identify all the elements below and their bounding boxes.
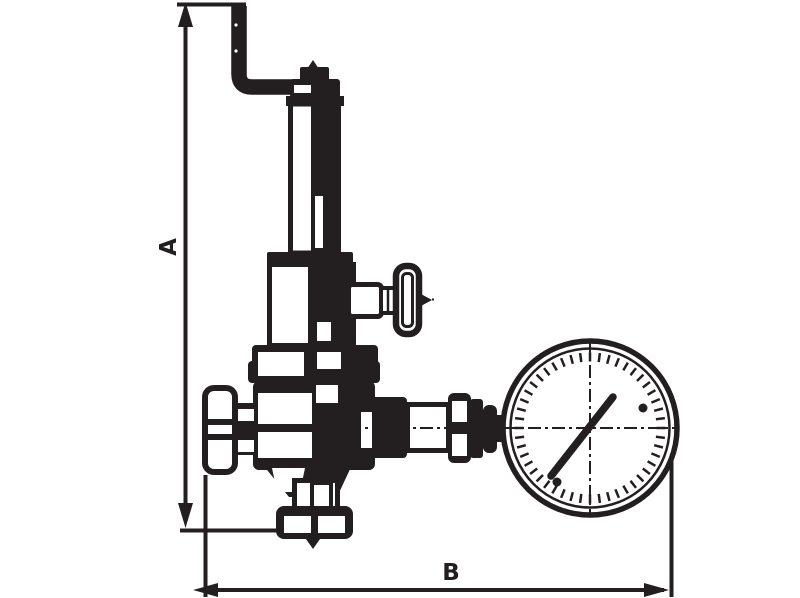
gauge-tick [656, 437, 665, 438]
gauge-tick [599, 353, 600, 362]
spring-tube-slot [315, 196, 323, 248]
handwheel-stem-slot [236, 440, 254, 452]
cap-highlight [294, 85, 311, 93]
knob-handle-slot [403, 274, 413, 327]
outlet-flange-slot [318, 516, 345, 533]
handwheel [203, 388, 257, 472]
dimension-a-arrow-down-icon [178, 503, 193, 528]
fitting-flange-slot [452, 401, 467, 422]
cap-step-1 [300, 67, 329, 81]
dimension-a-label: A [156, 238, 182, 256]
flange-highlight-left [258, 352, 304, 376]
outlet-flange-slot [284, 516, 311, 533]
spring-housing [267, 60, 354, 346]
gauge-tick [515, 418, 524, 419]
handwheel-rim [205, 388, 235, 472]
body-highlight-2 [258, 432, 312, 458]
body-highlight-1 [258, 393, 312, 424]
body-highlight-3 [316, 385, 338, 403]
valve-technical-drawing: A B [0, 0, 800, 598]
dimension-b-arrow-right-icon [644, 583, 669, 597]
gauge-tick [580, 353, 581, 362]
gauge-tick [515, 437, 524, 438]
valve-drawing-canvas: A B [0, 0, 800, 598]
knob-tip-arrow-icon [420, 294, 432, 307]
release-lever-pipe [239, 6, 292, 87]
handwheel-stem-slot [236, 409, 254, 421]
fitting-boss-slot [361, 412, 372, 448]
lever-thread-mark [234, 49, 237, 52]
gauge-screw-dot [639, 404, 648, 413]
handwheel-hub-band [203, 419, 237, 425]
gauge-tick [599, 494, 600, 503]
knob-tappet [349, 285, 382, 317]
gauge-tick [656, 418, 665, 419]
lever-thread-mark [234, 23, 237, 26]
handwheel-hub-band [203, 434, 237, 440]
dimension-b-label: B [442, 560, 460, 586]
outlet-drip-arrow-icon [306, 539, 320, 549]
bonnet-slot [317, 322, 331, 341]
spring-tube-core [311, 106, 336, 251]
pressure-gauge [503, 341, 677, 516]
gauge-screw-dot [553, 478, 562, 487]
fitting-flange-slot [452, 434, 467, 456]
flange-highlight-right [317, 352, 341, 369]
outlet-stem-guide [312, 483, 331, 509]
bonnet-flange [248, 345, 380, 383]
release-lever [234, 6, 292, 87]
gauge-tick [580, 494, 581, 503]
